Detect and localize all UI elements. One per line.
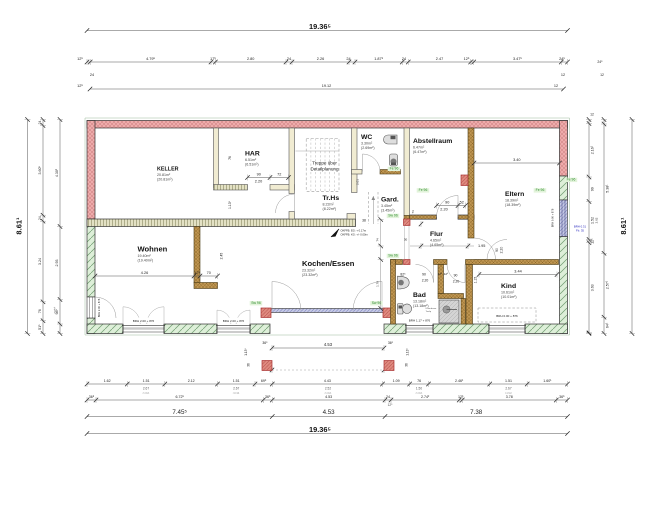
svg-text:6.72⁵: 6.72⁵ — [175, 395, 184, 399]
svg-text:8.61¹: 8.61¹ — [619, 217, 628, 235]
svg-text:2.62: 2.62 — [595, 217, 599, 223]
svg-text:90: 90 — [422, 273, 426, 277]
svg-text:Fe 96: Fe 96 — [419, 188, 428, 192]
svg-text:12⁵: 12⁵ — [444, 272, 449, 276]
svg-text:36⁵: 36⁵ — [262, 341, 268, 345]
svg-text:Bad: Bad — [413, 292, 426, 299]
svg-text:13.18m²: 13.18m² — [413, 299, 427, 303]
svg-text:(6.51m²): (6.51m²) — [245, 163, 259, 167]
svg-text:10.61m²: 10.61m² — [501, 290, 515, 294]
svg-text:64⁵: 64⁵ — [605, 322, 609, 328]
svg-text:Flur: Flur — [430, 231, 443, 238]
svg-text:2.12: 2.12 — [188, 379, 195, 383]
svg-text:19.40m²: 19.40m² — [138, 254, 152, 258]
svg-text:(10.01m²): (10.01m²) — [501, 295, 517, 299]
svg-text:3.63: 3.63 — [590, 284, 594, 291]
svg-text:74: 74 — [411, 210, 415, 214]
svg-text:1.51: 1.51 — [505, 379, 512, 383]
svg-text:72: 72 — [277, 173, 281, 177]
svg-text:2.80: 2.80 — [247, 57, 254, 61]
svg-text:90: 90 — [257, 173, 261, 177]
svg-text:zuzügl.: zuzügl. — [233, 392, 240, 394]
svg-text:1.15: 1.15 — [474, 277, 478, 284]
svg-text:6.47m²: 6.47m² — [413, 145, 425, 149]
svg-text:3.78: 3.78 — [506, 395, 513, 399]
svg-text:24: 24 — [38, 216, 42, 220]
svg-text:1.95: 1.95 — [478, 244, 485, 248]
svg-text:51⁵: 51⁵ — [38, 324, 42, 330]
svg-text:zuzügl.: zuzügl. — [505, 392, 512, 394]
svg-text:1.51: 1.51 — [233, 379, 240, 383]
svg-text:1.13⁵: 1.13⁵ — [228, 200, 232, 209]
svg-text:24⁵: 24⁵ — [559, 57, 565, 61]
svg-text:7.45⁵: 7.45⁵ — [172, 409, 187, 416]
svg-text:BRH 2.00 + 876: BRH 2.00 + 876 — [97, 298, 101, 317]
svg-text:2.74²: 2.74² — [421, 395, 430, 399]
svg-text:82⁵: 82⁵ — [400, 273, 406, 277]
svg-text:4.43: 4.43 — [324, 379, 331, 383]
svg-text:2.01: 2.01 — [356, 179, 360, 185]
svg-text:Gard.: Gard. — [381, 197, 399, 204]
svg-text:Fe 96: Fe 96 — [536, 188, 545, 192]
svg-text:12⁵: 12⁵ — [77, 57, 83, 61]
svg-text:zuzügl.: zuzügl. — [54, 306, 56, 313]
svg-text:36⁵: 36⁵ — [265, 395, 271, 399]
svg-text:90: 90 — [445, 201, 449, 205]
svg-text:4.53: 4.53 — [325, 395, 332, 399]
svg-text:1.09: 1.09 — [393, 379, 400, 383]
svg-text:BRH 2.00 + 876: BRH 2.00 + 876 — [223, 319, 245, 323]
svg-text:12⁵: 12⁵ — [590, 238, 594, 244]
svg-text:23.32m²: 23.32m² — [302, 268, 316, 272]
svg-text:12: 12 — [561, 73, 565, 77]
svg-text:2.52: 2.52 — [325, 387, 331, 391]
svg-text:4.26: 4.26 — [141, 271, 148, 275]
svg-text:Fe 96: Fe 96 — [567, 178, 576, 182]
svg-text:(2.69m²): (2.69m²) — [361, 146, 375, 150]
svg-text:3.30m²: 3.30m² — [361, 141, 373, 145]
svg-text:BRH 1.17 + 876: BRH 1.17 + 876 — [409, 318, 431, 322]
svg-text:1.79: 1.79 — [376, 281, 380, 287]
svg-text:3.40: 3.40 — [513, 158, 520, 162]
svg-text:24⁵: 24⁵ — [597, 60, 603, 64]
svg-text:2.20: 2.20 — [453, 280, 460, 284]
svg-text:12: 12 — [590, 113, 594, 117]
svg-text:4.79⁵: 4.79⁵ — [146, 57, 155, 61]
svg-text:2.20: 2.20 — [255, 180, 262, 184]
svg-text:3.45m²: 3.45m² — [381, 204, 393, 208]
svg-text:(4.65m²): (4.65m²) — [430, 243, 444, 247]
svg-text:Sw 96: Sw 96 — [388, 254, 398, 258]
svg-text:4.53: 4.53 — [324, 342, 333, 347]
svg-text:zuzügl.: zuzügl. — [143, 392, 150, 394]
svg-text:1.62: 1.62 — [104, 379, 111, 383]
svg-text:36: 36 — [405, 363, 409, 367]
svg-text:19.36⁵: 19.36⁵ — [309, 425, 331, 434]
svg-text:(23.32m²): (23.32m²) — [302, 273, 318, 277]
svg-text:Twvlp: Twvlp — [426, 311, 432, 313]
svg-text:zuzügl.: zuzügl. — [416, 392, 423, 394]
svg-text:3.24: 3.24 — [38, 258, 42, 265]
svg-text:3.47⁵: 3.47⁵ — [513, 57, 522, 61]
svg-text:BRH 2.00 + 876: BRH 2.00 + 876 — [133, 319, 155, 323]
svg-text:Wohnen: Wohnen — [138, 245, 168, 254]
svg-text:38: 38 — [362, 219, 366, 223]
svg-text:20.81m²: 20.81m² — [157, 173, 171, 177]
svg-text:24: 24 — [38, 121, 42, 125]
svg-text:(3.45m²): (3.45m²) — [381, 209, 395, 213]
svg-text:90: 90 — [454, 274, 458, 278]
svg-text:12⁵: 12⁵ — [77, 84, 83, 88]
svg-text:(18.39m²): (18.39m²) — [505, 203, 521, 207]
svg-text:1.13⁵: 1.13⁵ — [244, 348, 248, 356]
svg-text:Kochen/Essen: Kochen/Essen — [302, 259, 355, 268]
svg-text:74: 74 — [376, 238, 380, 242]
svg-text:12⁵: 12⁵ — [438, 272, 443, 276]
svg-text:(6.47m²): (6.47m²) — [413, 150, 427, 154]
svg-text:zuzügl.: zuzügl. — [325, 392, 332, 394]
svg-text:2.20: 2.20 — [440, 208, 447, 212]
svg-text:1.50: 1.50 — [416, 387, 422, 391]
svg-text:2.20: 2.20 — [500, 247, 504, 254]
svg-text:24: 24 — [402, 57, 406, 61]
svg-text:17⁵: 17⁵ — [210, 57, 216, 61]
svg-text:Fb. 35: Fb. 35 — [576, 229, 584, 233]
svg-text:2.46¹: 2.46¹ — [455, 379, 464, 383]
svg-text:19.12: 19.12 — [322, 84, 332, 88]
svg-text:2.93: 2.93 — [55, 260, 59, 267]
svg-text:18.39m²: 18.39m² — [505, 198, 519, 202]
svg-text:OKFFB. KG: +/- 0.00m: OKFFB. KG: +/- 0.00m — [341, 233, 369, 237]
svg-text:12⁵: 12⁵ — [194, 271, 200, 275]
svg-text:8.22m²: 8.22m² — [323, 202, 335, 206]
svg-text:3.60⁵: 3.60⁵ — [38, 166, 42, 175]
svg-text:30: 30 — [404, 238, 408, 242]
svg-text:KELLER: KELLER — [157, 167, 179, 173]
svg-text:Tr.Hs: Tr.Hs — [323, 195, 340, 202]
svg-text:1.87⁵: 1.87⁵ — [374, 57, 383, 61]
svg-text:3.44: 3.44 — [514, 270, 521, 274]
svg-text:24: 24 — [287, 57, 291, 61]
svg-text:24: 24 — [386, 395, 390, 399]
svg-text:Eltern: Eltern — [505, 191, 524, 198]
svg-text:1.60¹: 1.60¹ — [543, 379, 552, 383]
svg-text:24: 24 — [90, 73, 94, 77]
svg-text:2.45: 2.45 — [220, 253, 224, 260]
svg-text:BRH 0.00 + 876: BRH 0.00 + 876 — [496, 314, 518, 318]
svg-text:7.38: 7.38 — [470, 409, 483, 416]
svg-text:OKFFB. EG: + 0.17m: OKFFB. EG: + 0.17m — [341, 229, 367, 233]
svg-text:12: 12 — [600, 73, 604, 77]
svg-text:2.16¹: 2.16¹ — [590, 145, 594, 154]
svg-text:Sw 96: Sw 96 — [388, 214, 398, 218]
svg-text:(20.81m²): (20.81m²) — [157, 178, 173, 182]
svg-text:1.13⁵: 1.13⁵ — [406, 348, 410, 356]
svg-text:90: 90 — [495, 248, 499, 252]
svg-text:2.67: 2.67 — [143, 387, 149, 391]
svg-text:6.51m²: 6.51m² — [245, 158, 257, 162]
svg-text:4.53: 4.53 — [323, 409, 336, 416]
svg-text:52: 52 — [460, 201, 464, 205]
svg-text:WC: WC — [361, 134, 372, 141]
svg-text:36: 36 — [247, 363, 251, 367]
svg-text:(19.40m²): (19.40m²) — [138, 259, 154, 263]
svg-text:76: 76 — [228, 156, 232, 160]
svg-text:4.30¹: 4.30¹ — [55, 168, 59, 177]
svg-text:76: 76 — [417, 379, 421, 383]
svg-text:BRH 0.00 + 876: BRH 0.00 + 876 — [551, 208, 555, 227]
svg-text:36⁵: 36⁵ — [89, 395, 95, 399]
svg-text:Abstellraum: Abstellraum — [413, 138, 452, 145]
svg-text:12⁵: 12⁵ — [464, 57, 470, 61]
svg-text:Kind: Kind — [501, 283, 516, 290]
svg-text:24: 24 — [346, 57, 350, 61]
svg-text:12⁵: 12⁵ — [458, 395, 464, 399]
svg-text:4.65m²: 4.65m² — [430, 238, 442, 242]
svg-text:2.20: 2.20 — [422, 279, 429, 283]
svg-text:5.38¹: 5.38¹ — [605, 184, 609, 193]
svg-text:70: 70 — [207, 271, 211, 275]
svg-text:12⁵: 12⁵ — [388, 403, 394, 407]
svg-text:19.36⁵: 19.36⁵ — [309, 22, 331, 31]
svg-text:99: 99 — [590, 187, 594, 191]
svg-text:Treppe über: Treppe über — [312, 161, 337, 166]
svg-text:Sw 96: Sw 96 — [251, 301, 261, 305]
svg-text:HAR: HAR — [245, 151, 260, 158]
svg-text:2.26: 2.26 — [317, 57, 324, 61]
svg-text:36⁵: 36⁵ — [388, 341, 394, 345]
svg-text:Sw 96: Sw 96 — [372, 301, 382, 305]
svg-text:2.67: 2.67 — [505, 387, 511, 391]
svg-text:2.57¹: 2.57¹ — [605, 280, 609, 289]
svg-text:36⁵: 36⁵ — [559, 395, 565, 399]
svg-text:Detailplanung: Detailplanung — [310, 167, 339, 172]
svg-text:2.47: 2.47 — [436, 57, 443, 61]
svg-text:76: 76 — [38, 309, 42, 313]
svg-text:(13.18m²): (13.18m²) — [413, 304, 429, 308]
svg-text:12: 12 — [554, 84, 558, 88]
svg-text:Fe 96: Fe 96 — [390, 167, 399, 171]
svg-text:(8.22m²): (8.22m²) — [323, 207, 337, 211]
svg-text:69⁵: 69⁵ — [261, 379, 267, 383]
svg-text:2.67: 2.67 — [233, 387, 239, 391]
svg-text:8.61¹: 8.61¹ — [15, 217, 24, 235]
svg-text:1.51: 1.51 — [143, 379, 150, 383]
